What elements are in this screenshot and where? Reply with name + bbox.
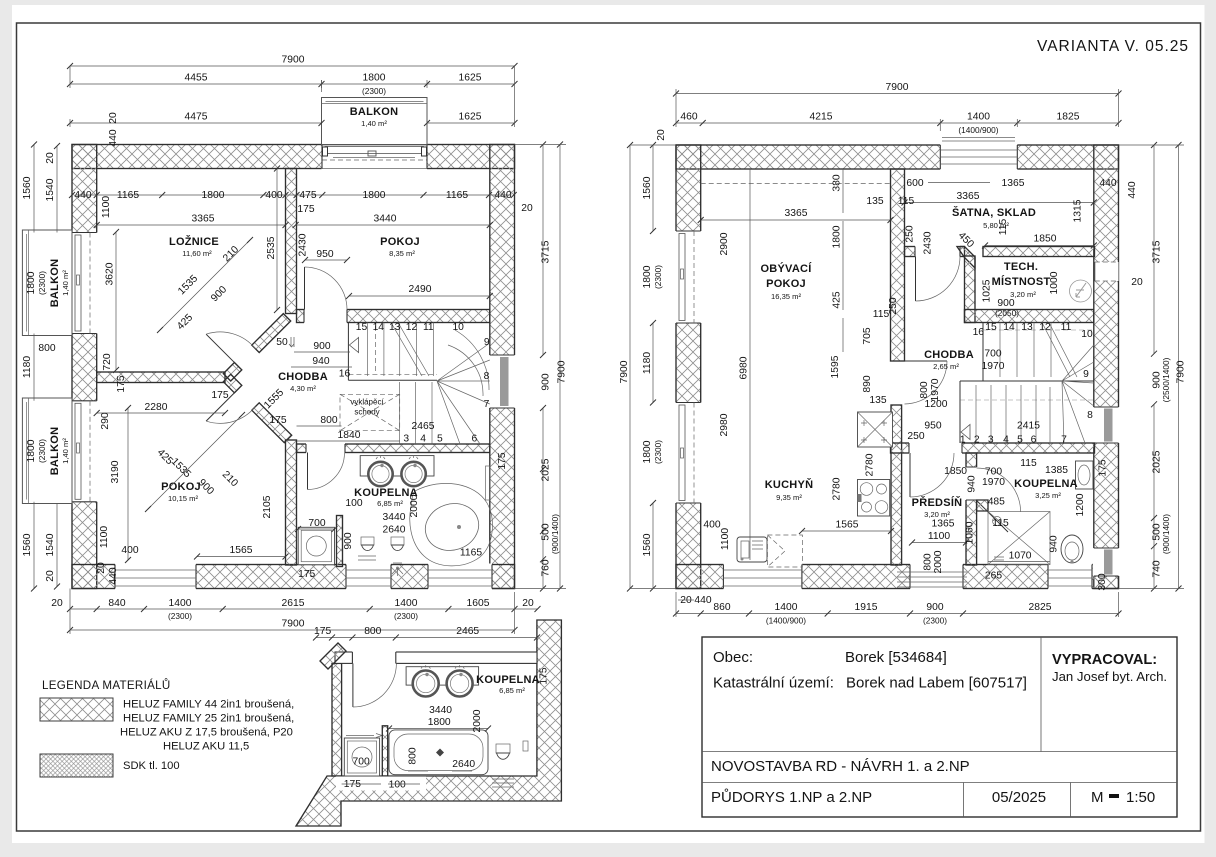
svg-text:BALKON: BALKON <box>350 106 399 118</box>
svg-text:1400: 1400 <box>395 598 418 609</box>
svg-text:7900: 7900 <box>557 360 568 383</box>
svg-text:115: 115 <box>992 518 1009 529</box>
svg-text:700: 700 <box>985 467 1002 478</box>
svg-text:3190: 3190 <box>110 460 121 483</box>
svg-text:2465: 2465 <box>412 421 435 432</box>
svg-text:2415: 2415 <box>1017 421 1040 432</box>
svg-text:05/2025: 05/2025 <box>992 789 1046 806</box>
svg-text:LEGENDA MATERIÁLŮ: LEGENDA MATERIÁLŮ <box>42 679 171 692</box>
svg-text:M: M <box>1091 789 1104 806</box>
svg-text:380: 380 <box>832 174 843 191</box>
svg-text:HELUZ FAMILY 25 2in1 broušená,: HELUZ FAMILY 25 2in1 broušená, <box>123 713 294 725</box>
svg-text:1595: 1595 <box>830 355 841 378</box>
svg-text:1915: 1915 <box>855 602 878 613</box>
svg-text:3440: 3440 <box>374 214 397 225</box>
svg-text:1100: 1100 <box>101 196 112 218</box>
svg-text:4455: 4455 <box>185 73 208 84</box>
svg-text:100: 100 <box>345 498 362 509</box>
svg-text:135: 135 <box>869 395 886 406</box>
svg-text:250: 250 <box>907 431 924 442</box>
svg-text:20: 20 <box>45 152 56 164</box>
svg-text:1560: 1560 <box>22 176 33 199</box>
svg-text:1060: 1060 <box>965 521 976 544</box>
svg-text:1625: 1625 <box>459 73 482 84</box>
svg-text:700: 700 <box>353 757 370 768</box>
svg-text:1315: 1315 <box>1072 199 1083 222</box>
svg-text:115: 115 <box>1020 458 1037 469</box>
svg-text:6: 6 <box>1031 435 1037 446</box>
svg-text:175: 175 <box>538 667 549 684</box>
svg-text:VARIANTA V. 05.25: VARIANTA V. 05.25 <box>1037 38 1189 55</box>
svg-text:11: 11 <box>1061 322 1072 333</box>
svg-text:(1400/900): (1400/900) <box>958 125 998 135</box>
svg-text:16: 16 <box>339 369 351 380</box>
svg-text:2430: 2430 <box>922 231 933 254</box>
svg-text:7900: 7900 <box>619 360 630 383</box>
svg-text:700: 700 <box>308 518 325 529</box>
svg-text:1625: 1625 <box>459 112 482 123</box>
svg-text:3: 3 <box>403 434 409 445</box>
svg-text:HELUZ AKU Z 17,5 broušená, P20: HELUZ AKU Z 17,5 broušená, P20 <box>120 727 293 739</box>
svg-text:175: 175 <box>269 415 286 426</box>
svg-text:10: 10 <box>452 322 464 333</box>
svg-text:760: 760 <box>541 559 552 576</box>
svg-text:700: 700 <box>984 349 1001 360</box>
svg-text:(1400/900): (1400/900) <box>766 616 806 626</box>
svg-text:400: 400 <box>265 190 282 201</box>
svg-text:2000: 2000 <box>933 550 944 573</box>
svg-text:900: 900 <box>926 602 943 613</box>
svg-text:5: 5 <box>437 434 443 445</box>
svg-text:440: 440 <box>108 567 119 584</box>
svg-text:1400: 1400 <box>169 598 192 609</box>
svg-text:7: 7 <box>1061 435 1067 446</box>
svg-text:720: 720 <box>102 353 113 370</box>
svg-text:250: 250 <box>888 297 899 314</box>
svg-text:7900: 7900 <box>282 55 305 66</box>
svg-text:2025: 2025 <box>1152 450 1163 473</box>
svg-text:1400: 1400 <box>967 112 990 123</box>
svg-text:20: 20 <box>108 112 119 124</box>
svg-text:2465: 2465 <box>456 626 479 637</box>
svg-text:440: 440 <box>1099 178 1116 189</box>
svg-text:15: 15 <box>985 322 997 333</box>
svg-text:890: 890 <box>862 375 873 392</box>
svg-text:CHODBA: CHODBA <box>924 349 974 361</box>
svg-text:1365: 1365 <box>1002 178 1025 189</box>
svg-text:1560: 1560 <box>22 533 33 556</box>
svg-text:1,40 m²: 1,40 m² <box>61 270 70 296</box>
svg-text:2825: 2825 <box>1029 602 1052 613</box>
svg-text:20: 20 <box>45 570 56 582</box>
svg-text:20: 20 <box>680 595 692 606</box>
svg-text:6: 6 <box>472 434 478 445</box>
svg-text:1800: 1800 <box>26 439 37 462</box>
svg-text:KUCHYŇ: KUCHYŇ <box>765 478 814 491</box>
svg-text:1840: 1840 <box>338 430 361 441</box>
svg-text:950: 950 <box>316 249 333 260</box>
svg-text:1165: 1165 <box>460 548 482 559</box>
svg-text:(2300): (2300) <box>653 265 663 289</box>
svg-text:8: 8 <box>484 371 490 382</box>
svg-text:SDK tl. 100: SDK tl. 100 <box>123 760 180 772</box>
svg-text:115: 115 <box>998 219 1009 236</box>
svg-text:1165: 1165 <box>446 190 468 201</box>
svg-text:1800: 1800 <box>832 225 843 248</box>
svg-text:705: 705 <box>862 327 873 344</box>
svg-text:425: 425 <box>832 291 843 308</box>
svg-text:1100: 1100 <box>99 526 110 548</box>
svg-text:115: 115 <box>873 309 890 320</box>
svg-text:1560: 1560 <box>642 176 653 199</box>
svg-text:(2300): (2300) <box>394 611 418 621</box>
svg-text:175: 175 <box>211 390 228 401</box>
svg-text:175: 175 <box>314 626 331 637</box>
svg-text:2105: 2105 <box>262 495 273 518</box>
svg-text:12: 12 <box>406 322 418 333</box>
svg-text:50: 50 <box>276 337 288 348</box>
svg-text:2000: 2000 <box>472 709 483 732</box>
svg-text:3715: 3715 <box>541 240 552 263</box>
svg-text:1825: 1825 <box>1057 112 1080 123</box>
svg-text:1540: 1540 <box>45 178 56 201</box>
svg-text:440: 440 <box>74 190 91 201</box>
svg-text:4,30 m²: 4,30 m² <box>290 384 316 393</box>
svg-text:11,60 m²: 11,60 m² <box>182 249 212 258</box>
svg-text:2900: 2900 <box>719 232 730 255</box>
svg-text:290: 290 <box>100 412 111 429</box>
svg-text:1200: 1200 <box>1075 493 1086 516</box>
svg-text:14: 14 <box>1003 322 1015 333</box>
svg-text:800: 800 <box>919 381 930 398</box>
svg-text:1100: 1100 <box>928 531 950 542</box>
svg-text:460: 460 <box>680 112 697 123</box>
svg-text:7900: 7900 <box>886 82 909 93</box>
svg-text:2640: 2640 <box>452 759 475 770</box>
svg-text:20: 20 <box>96 562 107 574</box>
svg-text:800: 800 <box>320 415 337 426</box>
svg-text:VYPRACOVAL:: VYPRACOVAL: <box>1052 652 1157 668</box>
svg-text:10,15 m²: 10,15 m² <box>168 494 198 503</box>
svg-text:vyklápěcí: vyklápěcí <box>350 398 384 407</box>
svg-text:1800: 1800 <box>428 717 451 728</box>
svg-text:5: 5 <box>1017 435 1023 446</box>
svg-text:1800: 1800 <box>363 73 386 84</box>
svg-text:600: 600 <box>906 178 923 189</box>
svg-text:OBÝVACÍ: OBÝVACÍ <box>760 262 812 275</box>
svg-text:(900/1400): (900/1400) <box>1161 514 1171 554</box>
svg-text:Borek nad Labem [607517]: Borek nad Labem [607517] <box>846 675 1027 692</box>
svg-text:BALKON: BALKON <box>49 427 61 476</box>
svg-text:(2300): (2300) <box>37 439 47 463</box>
svg-text:1180: 1180 <box>22 356 33 378</box>
svg-text:HELUZ FAMILY 44 2in1 broušená,: HELUZ FAMILY 44 2in1 broušená, <box>123 699 294 711</box>
svg-text:TECH.: TECH. <box>1004 261 1038 273</box>
svg-text:6,85 m²: 6,85 m² <box>499 686 525 695</box>
svg-text:POKOJ: POKOJ <box>161 481 201 493</box>
svg-text:20: 20 <box>521 203 533 214</box>
svg-text:(900/1400): (900/1400) <box>550 514 560 554</box>
svg-text:9,35 m²: 9,35 m² <box>776 493 802 502</box>
svg-text:1560: 1560 <box>642 533 653 556</box>
svg-text:950: 950 <box>924 421 941 432</box>
svg-text:1800: 1800 <box>363 190 386 201</box>
svg-text:3,25 m²: 3,25 m² <box>1035 491 1061 500</box>
svg-text:1385: 1385 <box>1045 465 1068 476</box>
svg-text:PŮDORYS 1.NP a 2.NP: PŮDORYS 1.NP a 2.NP <box>711 788 872 806</box>
svg-text:MÍSTNOST: MÍSTNOST <box>992 275 1051 288</box>
svg-text:175: 175 <box>497 452 508 469</box>
svg-text:Obec:: Obec: <box>713 649 753 666</box>
svg-text:860: 860 <box>713 602 730 613</box>
svg-text:(2300): (2300) <box>923 616 947 626</box>
svg-text:2640: 2640 <box>383 525 406 536</box>
svg-text:440: 440 <box>108 129 119 146</box>
svg-text:1565: 1565 <box>836 520 859 531</box>
svg-text:115: 115 <box>898 196 915 207</box>
svg-text:2780: 2780 <box>864 453 875 476</box>
svg-text:POKOJ: POKOJ <box>766 278 806 290</box>
svg-text:800: 800 <box>38 343 55 354</box>
svg-text:3715: 3715 <box>1152 240 1163 263</box>
svg-text:1970: 1970 <box>930 378 941 401</box>
svg-text:1200: 1200 <box>925 399 948 410</box>
svg-text:175: 175 <box>116 375 127 392</box>
svg-text:Katastrální území:: Katastrální území: <box>713 675 834 692</box>
svg-text:schody: schody <box>354 408 379 417</box>
svg-text:1800: 1800 <box>202 190 225 201</box>
svg-text:440: 440 <box>1127 181 1138 198</box>
svg-text:1165: 1165 <box>117 190 139 201</box>
svg-text:2000: 2000 <box>409 494 420 517</box>
svg-text:940: 940 <box>1049 535 1060 552</box>
svg-text:1800: 1800 <box>26 271 37 294</box>
svg-text:1970: 1970 <box>982 361 1005 372</box>
svg-text:ŠATNA, SKLAD: ŠATNA, SKLAD <box>952 206 1036 219</box>
svg-text:1605: 1605 <box>467 598 490 609</box>
svg-text:1,40 m²: 1,40 m² <box>361 119 387 128</box>
svg-text:7900: 7900 <box>282 619 305 630</box>
svg-text:LOŽNICE: LOŽNICE <box>169 235 219 248</box>
svg-text:940: 940 <box>312 356 329 367</box>
svg-text:16: 16 <box>973 327 985 338</box>
svg-text:Borek [534684]: Borek [534684] <box>845 649 947 666</box>
svg-text:6,85 m²: 6,85 m² <box>377 499 403 508</box>
svg-text:4215: 4215 <box>810 112 833 123</box>
svg-text:440: 440 <box>694 595 711 606</box>
svg-text:9: 9 <box>484 337 490 348</box>
svg-text:400: 400 <box>121 545 138 556</box>
svg-text:1850: 1850 <box>944 466 967 477</box>
svg-text:CHODBA: CHODBA <box>278 371 328 383</box>
svg-text:4: 4 <box>1003 435 1009 446</box>
svg-text:3365: 3365 <box>785 208 808 219</box>
svg-text:800: 800 <box>407 747 418 764</box>
svg-text:1000: 1000 <box>1049 271 1060 294</box>
svg-text:16,35 m²: 16,35 m² <box>771 292 801 301</box>
svg-text:265: 265 <box>985 571 1002 582</box>
svg-text:1:50: 1:50 <box>1126 789 1155 806</box>
svg-text:3440: 3440 <box>429 705 452 716</box>
svg-text:20: 20 <box>1131 277 1143 288</box>
svg-text:POKOJ: POKOJ <box>380 236 420 248</box>
svg-text:100: 100 <box>389 780 406 791</box>
svg-text:1: 1 <box>960 435 966 446</box>
svg-text:2780: 2780 <box>831 477 842 500</box>
svg-text:740: 740 <box>1152 560 1163 577</box>
svg-text:1365: 1365 <box>932 519 955 530</box>
svg-text:940: 940 <box>966 475 977 492</box>
svg-text:1,40 m²: 1,40 m² <box>61 438 70 464</box>
svg-text:2615: 2615 <box>282 598 305 609</box>
svg-text:3620: 3620 <box>105 262 116 285</box>
svg-text:15: 15 <box>356 322 368 333</box>
svg-text:Jan Josef byt. Arch.: Jan Josef byt. Arch. <box>1052 669 1167 684</box>
svg-text:1970: 1970 <box>982 477 1005 488</box>
svg-text:175: 175 <box>298 569 315 580</box>
svg-text:10: 10 <box>1081 329 1093 340</box>
svg-text:20: 20 <box>51 598 63 609</box>
svg-text:2025: 2025 <box>541 458 552 481</box>
svg-text:7900: 7900 <box>1176 360 1187 383</box>
svg-text:1850: 1850 <box>1034 234 1057 245</box>
svg-text:(2500/1400): (2500/1400) <box>1161 357 1171 402</box>
svg-text:3440: 3440 <box>383 512 406 523</box>
svg-text:7: 7 <box>484 399 490 410</box>
svg-text:(2300): (2300) <box>37 271 47 295</box>
svg-text:20: 20 <box>656 129 667 141</box>
svg-text:(2300): (2300) <box>362 86 386 96</box>
svg-text:3365: 3365 <box>192 214 215 225</box>
svg-text:NOVOSTAVBA RD - NÁVRH 1. a 2.N: NOVOSTAVBA RD - NÁVRH 1. a 2.NP <box>711 758 970 775</box>
svg-text:175: 175 <box>344 779 361 790</box>
svg-text:485: 485 <box>988 497 1005 508</box>
svg-text:2490: 2490 <box>409 284 432 295</box>
svg-text:12: 12 <box>1039 322 1051 333</box>
svg-text:(2300): (2300) <box>168 611 192 621</box>
svg-text:8: 8 <box>1087 410 1093 421</box>
svg-text:1070: 1070 <box>1009 551 1032 562</box>
svg-text:(2300): (2300) <box>653 440 663 464</box>
svg-text:175: 175 <box>297 204 314 215</box>
svg-text:2,65 m²: 2,65 m² <box>933 362 959 371</box>
svg-text:800: 800 <box>922 553 933 570</box>
svg-text:PŘEDSÍŇ: PŘEDSÍŇ <box>912 496 963 509</box>
svg-text:9: 9 <box>1083 369 1089 380</box>
svg-text:1180: 1180 <box>642 352 653 374</box>
svg-text:300: 300 <box>1097 573 1108 590</box>
svg-text:14: 14 <box>373 322 385 333</box>
svg-text:250: 250 <box>905 225 916 242</box>
svg-text:13: 13 <box>1021 322 1033 333</box>
svg-text:13: 13 <box>389 322 401 333</box>
svg-text:3365: 3365 <box>957 191 980 202</box>
svg-text:4475: 4475 <box>185 112 208 123</box>
svg-text:1800: 1800 <box>642 265 653 288</box>
svg-text:KOUPELNA: KOUPELNA <box>476 674 540 686</box>
svg-text:6980: 6980 <box>738 356 749 379</box>
svg-text:840: 840 <box>108 598 125 609</box>
svg-text:440: 440 <box>494 190 511 201</box>
svg-text:4: 4 <box>420 434 426 445</box>
svg-text:900: 900 <box>343 532 354 549</box>
svg-text:1025: 1025 <box>982 279 993 302</box>
svg-text:KOUPELNA: KOUPELNA <box>1014 478 1078 490</box>
svg-text:400: 400 <box>703 520 720 531</box>
svg-text:1400: 1400 <box>775 602 798 613</box>
svg-text:BALKON: BALKON <box>49 259 61 308</box>
svg-text:8,35 m²: 8,35 m² <box>389 249 415 258</box>
svg-text:800: 800 <box>364 626 381 637</box>
svg-text:1565: 1565 <box>230 545 253 556</box>
svg-text:HELUZ AKU 11,5: HELUZ AKU 11,5 <box>163 741 249 753</box>
svg-text:135: 135 <box>866 196 883 207</box>
svg-text:1100: 1100 <box>720 528 731 550</box>
svg-text:(2050): (2050) <box>995 308 1019 318</box>
svg-text:900: 900 <box>541 373 552 390</box>
svg-text:11: 11 <box>423 322 434 333</box>
svg-text:2: 2 <box>974 435 980 446</box>
svg-text:900: 900 <box>313 341 330 352</box>
svg-text:2980: 2980 <box>719 413 730 436</box>
svg-text:1540: 1540 <box>45 533 56 556</box>
svg-text:175: 175 <box>1098 459 1109 476</box>
svg-text:475: 475 <box>299 190 316 201</box>
svg-text:2430: 2430 <box>298 233 309 256</box>
svg-text:2535: 2535 <box>266 236 277 259</box>
svg-text:20: 20 <box>522 598 534 609</box>
svg-text:2280: 2280 <box>145 402 168 413</box>
svg-text:3: 3 <box>988 435 994 446</box>
svg-text:1800: 1800 <box>642 440 653 463</box>
